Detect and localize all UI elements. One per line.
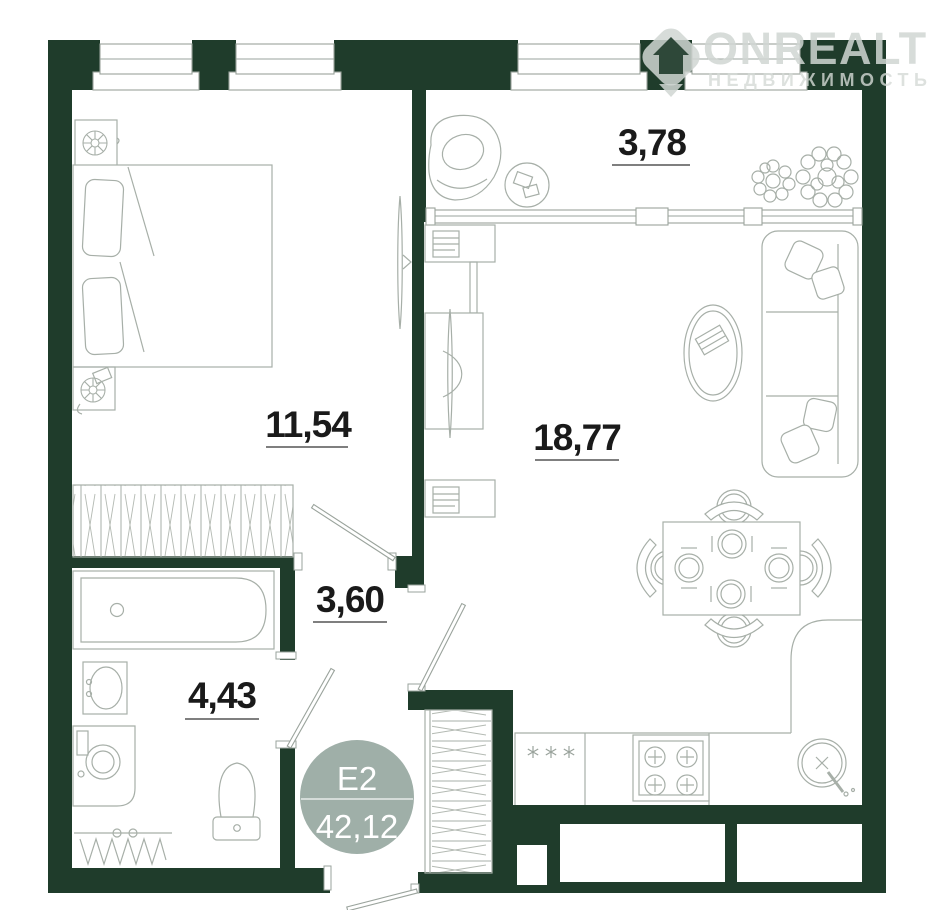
media-wall [425,225,495,517]
plant [752,160,795,202]
area-label-living: 18,77 [533,417,621,460]
nightstand-top [75,120,119,166]
bathroom-area-value: 4,43 [188,675,256,716]
area-label-bathroom: 4,43 [185,675,259,719]
entrance-closet [425,710,492,873]
wall-left [48,40,72,893]
bedroom-tv [398,196,411,329]
wall-closet-bottom [418,872,493,893]
wall-bedroom-balcony [412,90,426,222]
wall-hall-top [48,556,295,568]
bathroom-sink [83,662,127,714]
floor-plan-screenshot: 3,78 11,54 18,77 3,60 4,43 E2 42,12 [0,0,934,910]
side-table [505,163,549,207]
nightstand-bottom [73,367,115,414]
wall-bedroom-living [412,222,424,560]
plan-type-value: E2 [337,760,377,797]
wall-hall-junction [395,556,424,588]
washing-machine [73,726,135,806]
window-bedroom-1 [93,44,199,90]
towel-radiator [74,829,172,864]
wall-bath-right-upper [280,556,295,660]
lamp-icon [83,131,107,155]
bathroom-door [276,652,334,748]
area-label-hallway: 3,60 [313,579,387,622]
window-balcony-1 [511,44,647,90]
armchair [429,115,501,200]
coffee-table [684,305,742,401]
bedroom-door [294,504,396,570]
entrance-door [324,866,419,910]
living-furniture [425,225,858,647]
living-area-value: 18,77 [533,417,621,458]
wall-niche [737,824,862,882]
toilet [213,763,260,840]
hallway-area-value: 3,60 [316,579,384,620]
bed [73,165,272,367]
bathroom-furniture [73,571,274,864]
bathtub [73,571,274,649]
wardrobe [73,485,293,557]
wall-niche [517,845,547,885]
living-room-door [408,585,465,691]
floor-plan-svg: 3,78 11,54 18,77 3,60 4,43 E2 42,12 [0,0,934,910]
wall-top-segment [334,40,518,90]
window-bedroom-2 [229,44,341,90]
plant [796,147,858,207]
balcony-area-value: 3,78 [618,122,686,163]
stove [633,735,709,801]
plan-type-badge: E2 42,12 [300,740,414,854]
watermark-tagline: НЕДВИЖИМОСТЬ [708,70,932,90]
wall-bath-right-lower [280,747,295,868]
wall-right [862,40,886,893]
watermark-brand: ONREALT [703,23,928,74]
wall-bottom-left [48,868,330,893]
dining-table [663,522,800,615]
total-area-value: 42,12 [316,808,399,845]
bedroom-area-value: 11,54 [265,404,352,445]
wall-niche [560,824,725,882]
bedroom-furniture [73,120,411,557]
kitchen-sink [798,739,855,796]
area-label-bedroom: 11,54 [265,404,352,447]
area-label-balcony: 3,78 [612,122,690,165]
kitchen [515,620,862,805]
fridge [528,746,574,758]
sofa [762,231,858,477]
dining-set [637,490,831,647]
balcony-glazing [426,208,862,225]
wall-closet-top [408,690,513,710]
